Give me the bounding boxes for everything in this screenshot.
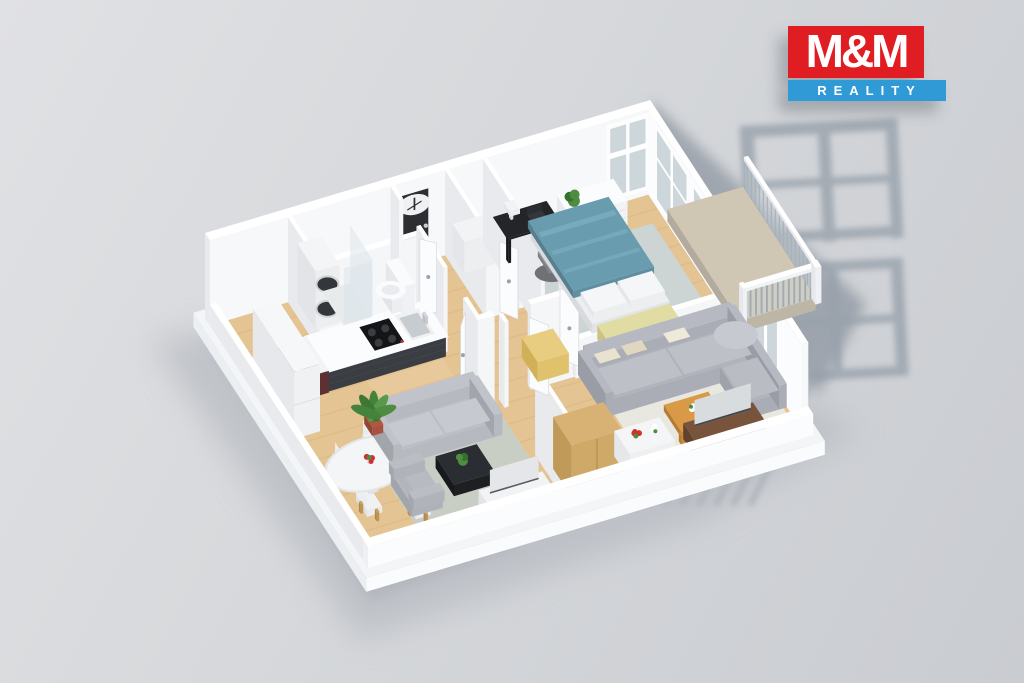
brand-logo-reality: REALITY <box>788 80 946 101</box>
brand-logo-mm: M&M <box>788 26 924 78</box>
brand-logo: M&M REALITY <box>788 26 946 101</box>
floor-plan-render <box>0 0 1024 683</box>
floor-plan-stage: M&M REALITY <box>0 0 1024 683</box>
